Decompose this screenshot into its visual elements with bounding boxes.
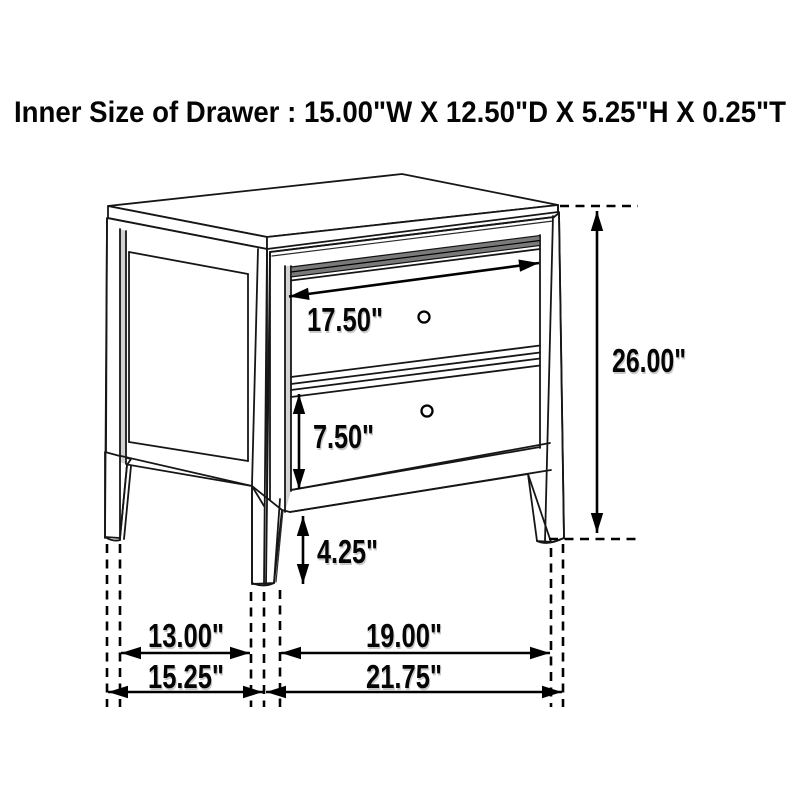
front-leg-gap-label: 19.00" — [366, 617, 442, 654]
diagram-canvas: Inner Size of Drawer : 15.00"W X 12.50"D… — [0, 0, 800, 800]
top-drawer-knob — [419, 312, 430, 323]
side-leg-gap-label: 13.00" — [148, 617, 224, 654]
bottom-drawer-knob — [422, 406, 433, 417]
overall-width-label: 21.75" — [366, 658, 442, 695]
lower-drawer-height-label: 7.50" — [313, 418, 374, 455]
nightstand-dimension-diagram: Inner Size of Drawer : 15.00"W X 12.50"D… — [0, 0, 800, 800]
left-side-panel — [106, 218, 267, 507]
drawer-inner-size-title: Inner Size of Drawer : 15.00"W X 12.50"D… — [14, 96, 786, 129]
overall-height-label: 26.00" — [612, 342, 686, 379]
drawer-front-width-label: 17.50" — [307, 301, 383, 338]
overall-depth-label: 15.25" — [148, 658, 224, 695]
floor-clearance-label: 4.25" — [317, 533, 378, 570]
